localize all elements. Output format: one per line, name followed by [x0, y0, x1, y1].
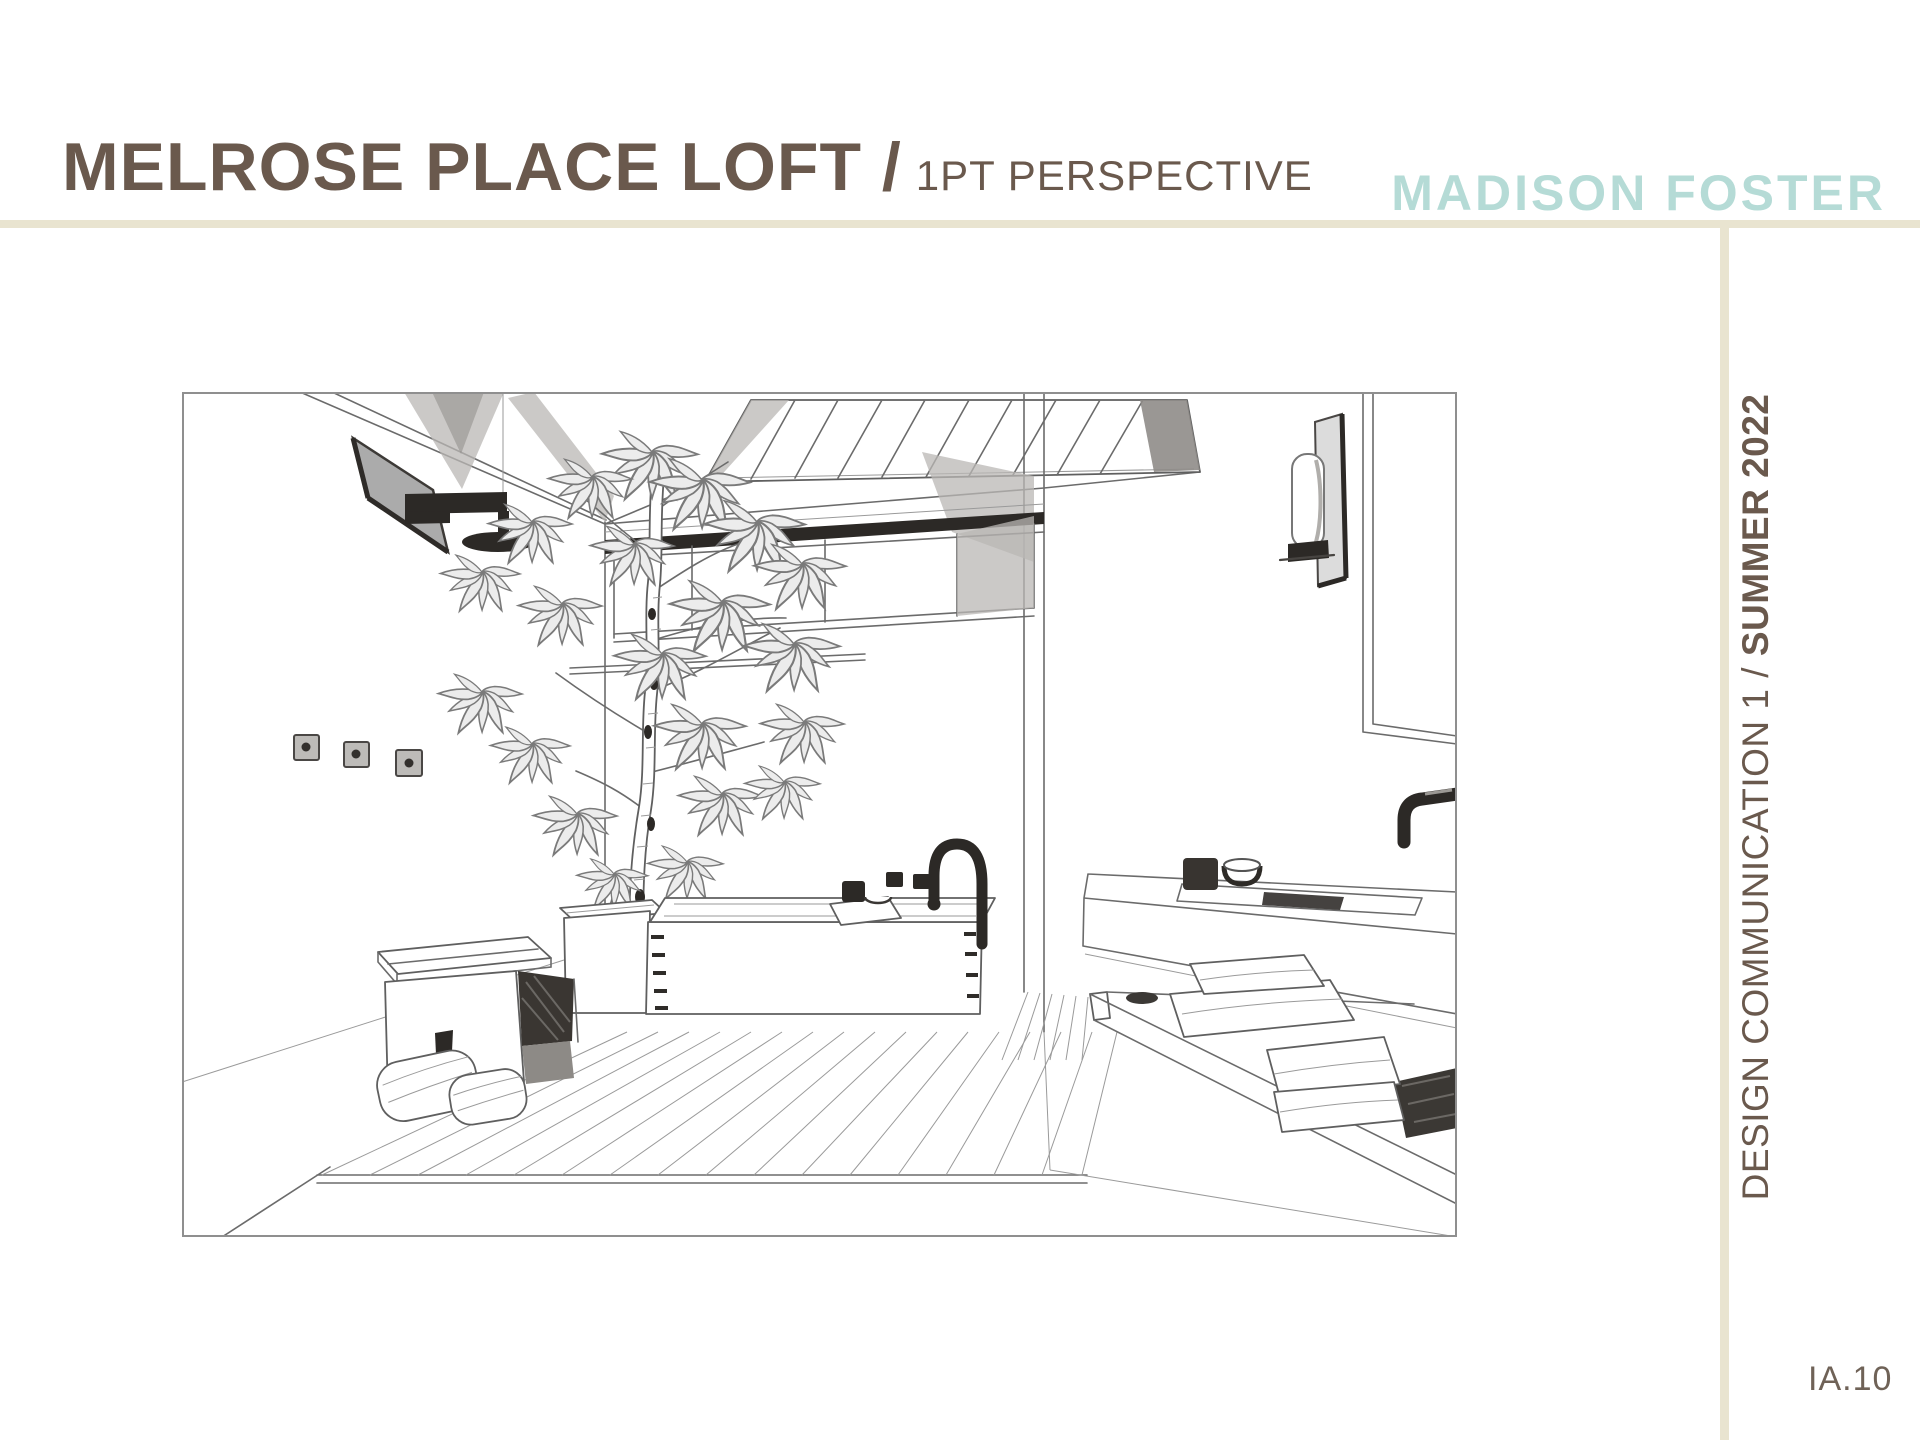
sketch-canvas — [182, 392, 1457, 1237]
wall-faucet-icon — [1404, 790, 1457, 842]
portfolio-page: MELROSE PLACE LOFT /1PT PERSPECTIVE MADI… — [0, 0, 1920, 1440]
folded-towels — [1170, 955, 1404, 1132]
course-label: DESIGN COMMUNICATION 1 / — [1735, 656, 1776, 1200]
mirror — [1363, 394, 1457, 744]
project-title: MELROSE PLACE LOFT / — [62, 129, 902, 205]
bath-tray — [830, 881, 901, 925]
vanity-shadow — [1394, 1068, 1457, 1138]
author-name: MADISON FOSTER — [1391, 164, 1886, 222]
sketch-border — [183, 393, 1456, 1236]
wall-outlets — [294, 735, 422, 776]
course-info: DESIGN COMMUNICATION 1 / SUMMER 2022 — [1735, 394, 1777, 1201]
term-label: SUMMER 2022 — [1735, 394, 1776, 657]
view-subtitle: 1PT PERSPECTIVE — [916, 152, 1313, 199]
wall-sconce — [1280, 414, 1346, 586]
wooden-soaking-tub — [646, 898, 995, 1014]
header-rule — [0, 220, 1920, 228]
page-number: IA.10 — [1808, 1360, 1892, 1399]
tub-controls — [886, 872, 930, 889]
side-rule — [1720, 228, 1729, 1440]
page-title: MELROSE PLACE LOFT /1PT PERSPECTIVE — [62, 128, 1313, 206]
perspective-sketch — [182, 392, 1457, 1237]
toiletries — [1183, 858, 1260, 890]
